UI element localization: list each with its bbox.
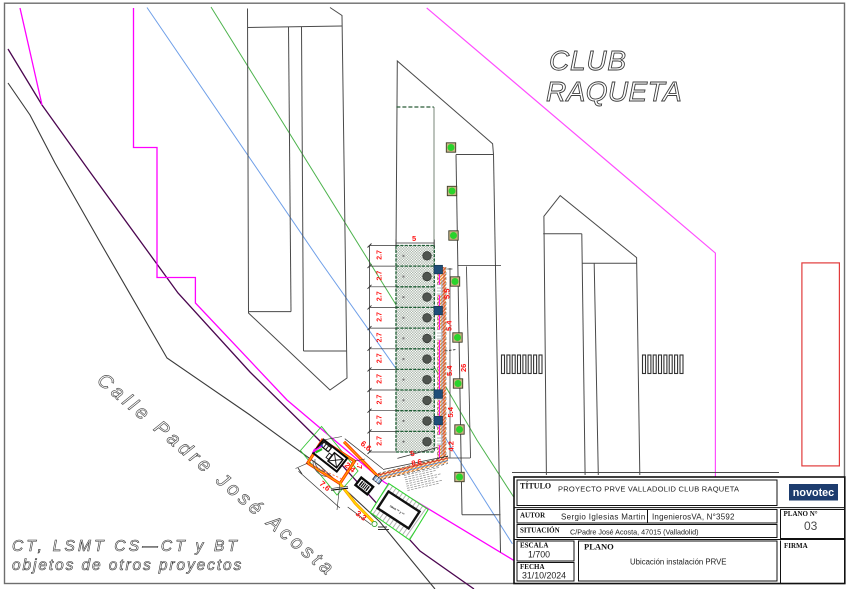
svg-text:03: 03 [804,519,818,533]
svg-text:ESCALA: ESCALA [520,542,548,550]
svg-text:5.4: 5.4 [445,320,454,331]
svg-text:.7: .7 [355,463,362,469]
svg-text:2.7: 2.7 [377,291,384,301]
svg-text:CLUB: CLUB [549,45,627,76]
svg-text:TÍTULO: TÍTULO [520,481,551,491]
svg-text:CT, LSMT CS—CT y BT: CT, LSMT CS—CT y BT [12,538,240,555]
svg-text:C/Padre José Acosta, 47015 (Va: C/Padre José Acosta, 47015 (Valladolid) [570,528,699,537]
svg-text:26: 26 [459,364,468,372]
svg-text:2.7: 2.7 [377,250,384,260]
svg-text:31/10/2024: 31/10/2024 [522,571,566,581]
svg-text:2.7: 2.7 [377,436,384,446]
svg-text:AUTOR: AUTOR [520,512,546,520]
svg-text:2.7: 2.7 [377,374,384,384]
svg-text:2.7: 2.7 [377,333,384,343]
svg-text:RAQUETA: RAQUETA [546,76,682,107]
svg-text:2.7: 2.7 [377,353,384,363]
svg-text:1/700: 1/700 [528,550,550,560]
svg-text:2.7: 2.7 [377,415,384,425]
svg-text:2.7: 2.7 [377,271,384,281]
svg-text:objetos de otros proyectos: objetos de otros proyectos [12,557,243,574]
svg-text:5.5: 5.5 [443,289,452,299]
svg-text:PLANO: PLANO [584,542,614,552]
svg-text:5.4: 5.4 [446,406,455,417]
svg-text:5: 5 [412,234,416,243]
svg-text:2.7: 2.7 [377,312,384,322]
svg-text:4.2: 4.2 [447,441,456,451]
svg-text:FIRMA: FIRMA [784,542,808,550]
svg-text:IngenierosVA, N°3592: IngenierosVA, N°3592 [652,513,735,522]
svg-text:PROYECTO PRVE VALLADOLID CLUB: PROYECTO PRVE VALLADOLID CLUB RAQUETA [558,485,739,494]
svg-text:SITUACIÓN: SITUACIÓN [520,527,560,535]
svg-text:Sergio Iglesias Martin: Sergio Iglesias Martin [561,513,646,522]
svg-text:PLANO N°: PLANO N° [784,510,818,518]
svg-text:5.4: 5.4 [445,365,454,376]
svg-text:Ubicación instalación PRVE: Ubicación instalación PRVE [630,558,727,567]
svg-text:novotec: novotec [793,487,834,499]
svg-text:2.7: 2.7 [377,395,384,405]
